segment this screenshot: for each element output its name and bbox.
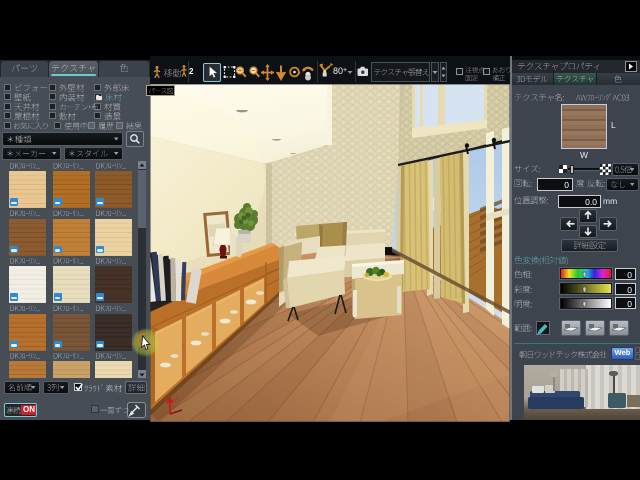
svg-text:z: z: [174, 397, 178, 404]
